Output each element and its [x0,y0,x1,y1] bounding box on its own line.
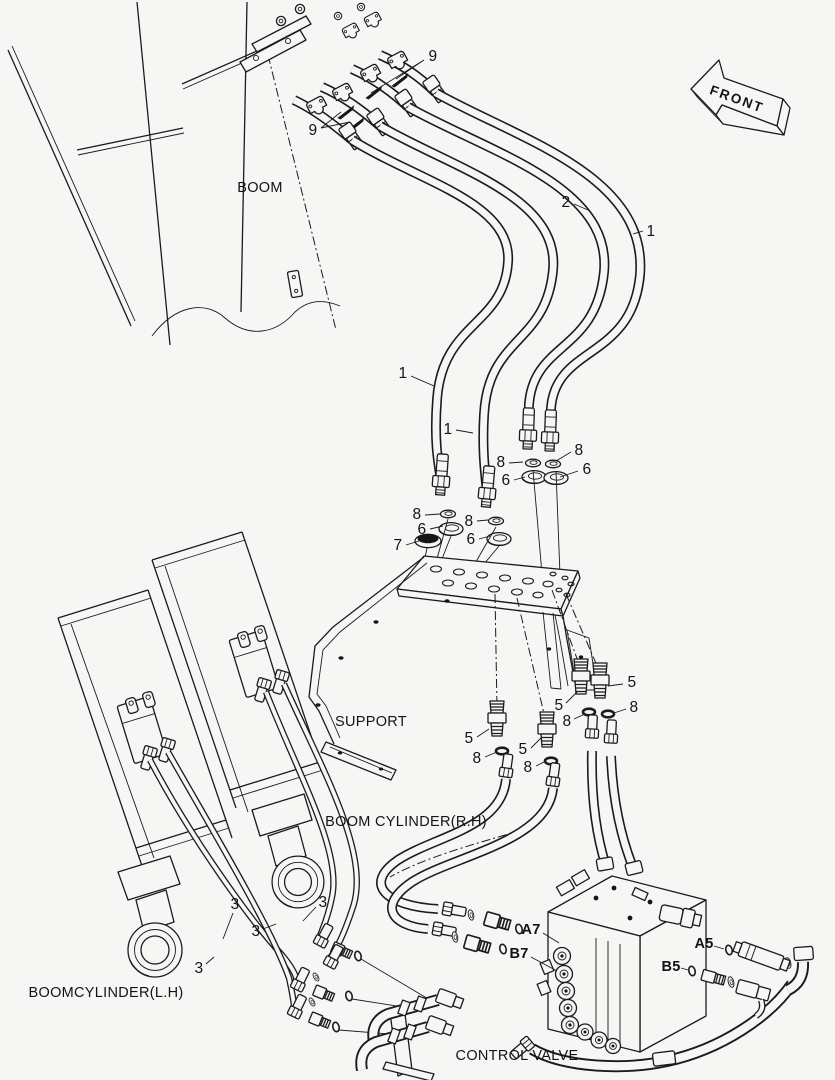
control-valve-block [537,870,706,1054]
boom-cylinders [58,532,326,977]
boom-hoses [352,93,640,508]
hose-clamp-bracket [240,3,449,151]
support-fittings [488,659,618,787]
front-arrow [691,60,790,135]
piping-diagram-art [0,0,835,1080]
boom-structure [8,2,340,345]
plug-7 [415,534,441,548]
support-bracket [309,556,598,780]
diagram-canvas: BOOMFRONTSUPPORTBOOM CYLINDER(R.H)BOOMCY… [0,0,835,1080]
elbow-manifold [361,988,464,1080]
